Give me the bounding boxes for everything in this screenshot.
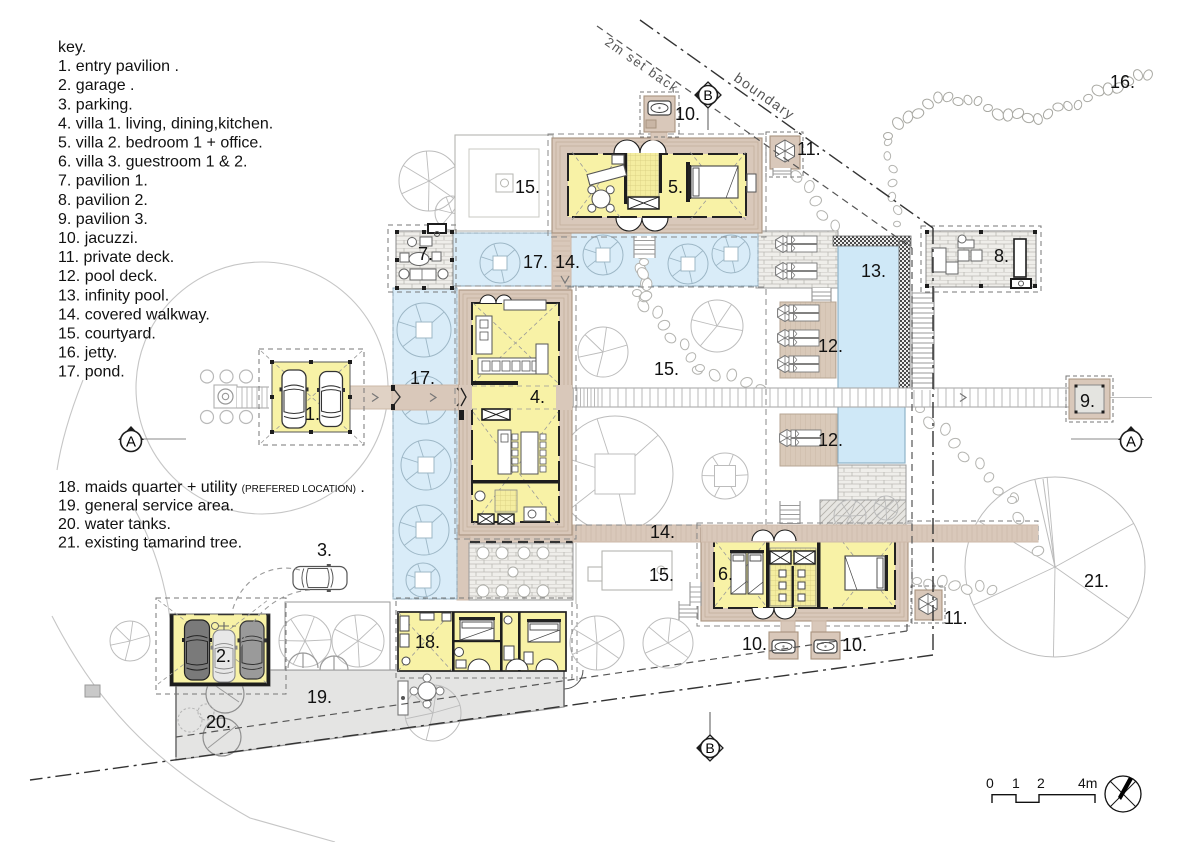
svg-text:9. pavilion 3.: 9. pavilion 3. xyxy=(58,211,148,228)
svg-text:7. pavilion 1.: 7. pavilion 1. xyxy=(58,173,148,190)
svg-text:4. villa 1. living, dining,kit: 4. villa 1. living, dining,kitchen. xyxy=(58,115,273,132)
svg-text:15.: 15. xyxy=(654,359,679,379)
svg-text:11. private deck.: 11. private deck. xyxy=(58,249,174,266)
svg-text:1.: 1. xyxy=(305,404,320,424)
svg-text:10.: 10. xyxy=(742,634,767,654)
svg-text:B: B xyxy=(703,87,712,103)
svg-text:10.: 10. xyxy=(842,635,867,655)
svg-text:12.: 12. xyxy=(818,336,843,356)
svg-text:14.: 14. xyxy=(650,522,675,542)
svg-text:17.: 17. xyxy=(410,368,435,388)
svg-text:21. existing tamarind tree.: 21. existing tamarind tree. xyxy=(58,535,242,552)
svg-text:17. pond.: 17. pond. xyxy=(58,364,125,381)
svg-text:1. entry pavilion .: 1. entry pavilion . xyxy=(58,58,179,75)
svg-text:5.: 5. xyxy=(668,177,683,197)
svg-text:11.: 11. xyxy=(944,608,968,628)
svg-text:18.: 18. xyxy=(415,632,440,652)
svg-text:11.: 11. xyxy=(797,139,821,159)
svg-text:16. jetty.: 16. jetty. xyxy=(58,345,117,362)
svg-text:17.: 17. xyxy=(523,252,548,272)
svg-text:16.: 16. xyxy=(1110,72,1135,92)
svg-text:1: 1 xyxy=(1012,775,1020,791)
svg-text:4.: 4. xyxy=(530,387,545,407)
svg-text:15.: 15. xyxy=(649,565,674,585)
svg-text:15. courtyard.: 15. courtyard. xyxy=(58,326,156,343)
svg-text:7.: 7. xyxy=(418,244,433,264)
svg-text:2.: 2. xyxy=(216,646,231,666)
svg-text:12.: 12. xyxy=(818,430,843,450)
svg-text:15.: 15. xyxy=(515,177,540,197)
svg-text:6. villa 3. guestroom 1 & 2.: 6. villa 3. guestroom 1 & 2. xyxy=(58,154,247,171)
svg-text:13.: 13. xyxy=(861,261,886,281)
svg-text:3.: 3. xyxy=(317,540,332,560)
svg-text:14. covered walkway.: 14. covered walkway. xyxy=(58,306,210,323)
svg-text:0: 0 xyxy=(986,775,994,791)
svg-text:4m: 4m xyxy=(1078,775,1097,791)
svg-text:20.: 20. xyxy=(206,712,231,732)
svg-text:8.: 8. xyxy=(994,246,1009,266)
svg-text:9.: 9. xyxy=(1080,391,1095,411)
svg-text:13. infinity pool.: 13. infinity pool. xyxy=(58,287,169,304)
svg-text:21.: 21. xyxy=(1084,571,1109,591)
svg-text:2: 2 xyxy=(1037,775,1045,791)
svg-text:19.: 19. xyxy=(307,687,332,707)
svg-text:19. general service area.: 19. general service area. xyxy=(58,498,234,515)
svg-text:8. pavilion 2.: 8. pavilion 2. xyxy=(58,192,148,209)
svg-text:B: B xyxy=(705,740,714,756)
svg-text:key.: key. xyxy=(58,39,86,56)
svg-text:3. parking.: 3. parking. xyxy=(58,96,133,113)
svg-text:A: A xyxy=(126,434,136,451)
svg-text:6.: 6. xyxy=(718,564,733,584)
svg-text:12. pool deck.: 12. pool deck. xyxy=(58,268,158,285)
svg-text:14.: 14. xyxy=(555,252,580,272)
svg-text:10. jacuzzi.: 10. jacuzzi. xyxy=(58,230,138,247)
svg-text:20. water tanks.: 20. water tanks. xyxy=(58,516,171,533)
svg-text:5. villa 2. bedroom 1 + office: 5. villa 2. bedroom 1 + office. xyxy=(58,135,263,152)
svg-text:10.: 10. xyxy=(675,104,700,124)
svg-text:2. garage .: 2. garage . xyxy=(58,77,135,94)
svg-text:A: A xyxy=(1126,434,1136,451)
